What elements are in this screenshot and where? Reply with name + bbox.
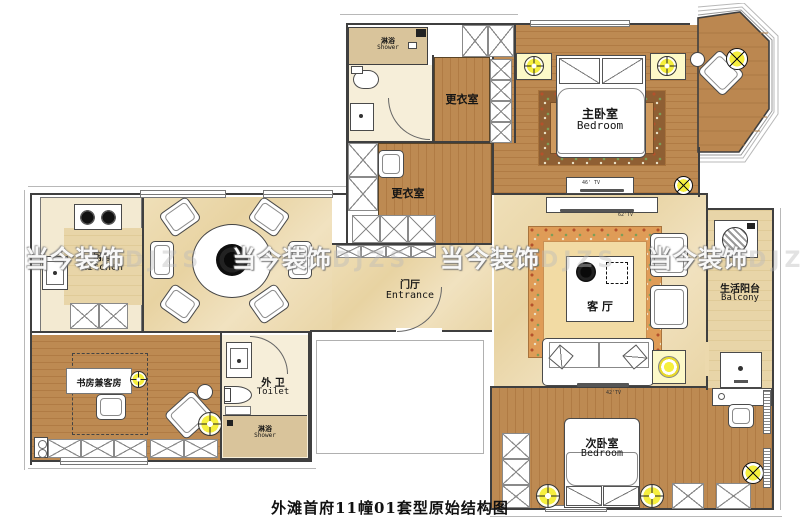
kitchen-label-en: Kitchen <box>62 262 142 273</box>
wardrobe-hatch <box>490 80 512 101</box>
wall <box>706 208 774 210</box>
outline <box>28 186 348 187</box>
tv-size-label: 62'TV <box>618 212 633 218</box>
wardrobe-hatch <box>490 59 512 80</box>
toilet-label-en: Toilet <box>244 387 302 397</box>
window <box>530 20 630 27</box>
study-stool <box>197 384 213 400</box>
study-label: 书房兼客房 <box>66 376 132 389</box>
wall <box>308 333 310 460</box>
ceiling-light-icon <box>742 462 764 484</box>
shower-corner <box>416 29 426 37</box>
wall <box>514 23 516 143</box>
door-gap <box>705 342 709 376</box>
corner-light-box <box>652 350 686 384</box>
kitchen-cabinet-hatch <box>99 303 128 329</box>
tv-size-label: 42'TV <box>606 390 621 396</box>
sink-dot <box>359 114 363 118</box>
dressing-chair <box>378 150 404 178</box>
bedside-lamp-icon <box>640 484 664 508</box>
study-lamp-icon <box>130 371 147 388</box>
outline <box>24 190 25 470</box>
ceiling-light-icon <box>674 176 693 195</box>
armchair <box>650 233 688 277</box>
utility-box <box>34 437 48 458</box>
table-plant <box>576 262 596 282</box>
study-cabinet-hatch <box>150 439 184 458</box>
wall <box>698 147 700 197</box>
floor-plan: 46' TV 主卧室 Bedroom 淋浴 Shower 更衣室 更衣室 厨房 … <box>0 0 805 531</box>
table-centerpiece <box>216 244 248 276</box>
sill-hatch <box>411 245 436 258</box>
radiator <box>763 448 771 488</box>
tv-icon <box>577 383 629 387</box>
wall <box>220 333 222 460</box>
washing-machine <box>714 220 758 258</box>
wardrobe-hatch <box>352 215 380 243</box>
dining-chair <box>288 241 312 279</box>
dressing-upper-label: 更衣室 <box>434 91 490 107</box>
wall <box>310 331 312 462</box>
ceiling-light-icon <box>726 48 748 70</box>
table-tray <box>606 262 628 284</box>
shower-bottom-label-en: Shower <box>240 432 290 439</box>
shower-head <box>227 420 233 426</box>
dining-chair <box>150 241 174 279</box>
study-cabinet-hatch <box>81 439 114 458</box>
wardrobe-hatch <box>348 143 378 177</box>
bedroom2-wardrobe-hatch <box>502 459 530 485</box>
outline <box>28 468 316 469</box>
kitchen-cabinet-hatch <box>70 303 99 329</box>
study-cabinet-hatch <box>184 439 218 458</box>
living-room-label: 客 厅 <box>565 298 635 314</box>
toilet-sink <box>226 342 252 378</box>
outline <box>780 208 781 510</box>
entrance-label: 门厅 <box>380 276 440 291</box>
sill-hatch <box>386 245 411 258</box>
pillow <box>602 58 643 84</box>
closet-hatch <box>488 25 514 57</box>
balcony-label-en: Balcony <box>704 293 776 303</box>
master-bedroom-label-en: Bedroom <box>560 119 640 132</box>
outline <box>340 14 518 15</box>
balcony-sink <box>720 352 762 388</box>
desk2-chair <box>728 404 754 428</box>
wc-tank <box>224 388 231 402</box>
window <box>60 457 148 465</box>
closet-hatch <box>462 25 488 57</box>
study-chair <box>96 394 126 420</box>
wall <box>142 195 144 332</box>
wardrobe-hatch <box>408 215 436 243</box>
wall <box>490 386 492 510</box>
desk2-dot <box>718 393 725 400</box>
bedroom2-wardrobe-hatch <box>502 433 530 459</box>
wall <box>772 208 774 510</box>
wall <box>222 458 310 460</box>
wardrobe-hatch <box>490 101 512 122</box>
radiator <box>763 390 771 434</box>
wardrobe-hatch <box>380 215 408 243</box>
outline-notch <box>316 340 484 454</box>
dressing-lower-label: 更衣室 <box>380 185 436 201</box>
bedroom2-closet-hatch <box>716 483 751 509</box>
bedroom2-closet-hatch <box>672 483 704 509</box>
wall <box>346 23 348 245</box>
plan-caption: 外滩首府11幢01套型原始结构图 <box>150 497 630 518</box>
tv-icon <box>580 189 624 192</box>
shower-control <box>408 42 417 49</box>
wall <box>30 193 32 465</box>
armchair <box>650 285 688 329</box>
study-floor-lamp-icon <box>198 412 222 436</box>
bath-cabinet <box>225 406 251 415</box>
bedside-lamp-icon <box>524 56 544 76</box>
pillow <box>559 58 600 84</box>
bay-window <box>652 3 792 203</box>
bedside-lamp-icon <box>657 56 677 76</box>
toilet-tank <box>351 66 363 74</box>
entrance-label-en: Entrance <box>370 290 450 301</box>
wardrobe-hatch <box>348 177 378 211</box>
stool <box>690 52 705 67</box>
study-cabinet-hatch <box>48 439 81 458</box>
stove <box>74 204 122 230</box>
window <box>263 190 333 198</box>
sill-hatch <box>336 245 361 258</box>
sill-hatch <box>361 245 386 258</box>
wardrobe-hatch <box>490 122 512 143</box>
study-cabinet-hatch <box>114 439 147 458</box>
tv-size-label: 46' TV <box>582 180 600 186</box>
wall <box>30 331 312 333</box>
second-bedroom-label-en: Bedroom <box>565 448 639 459</box>
